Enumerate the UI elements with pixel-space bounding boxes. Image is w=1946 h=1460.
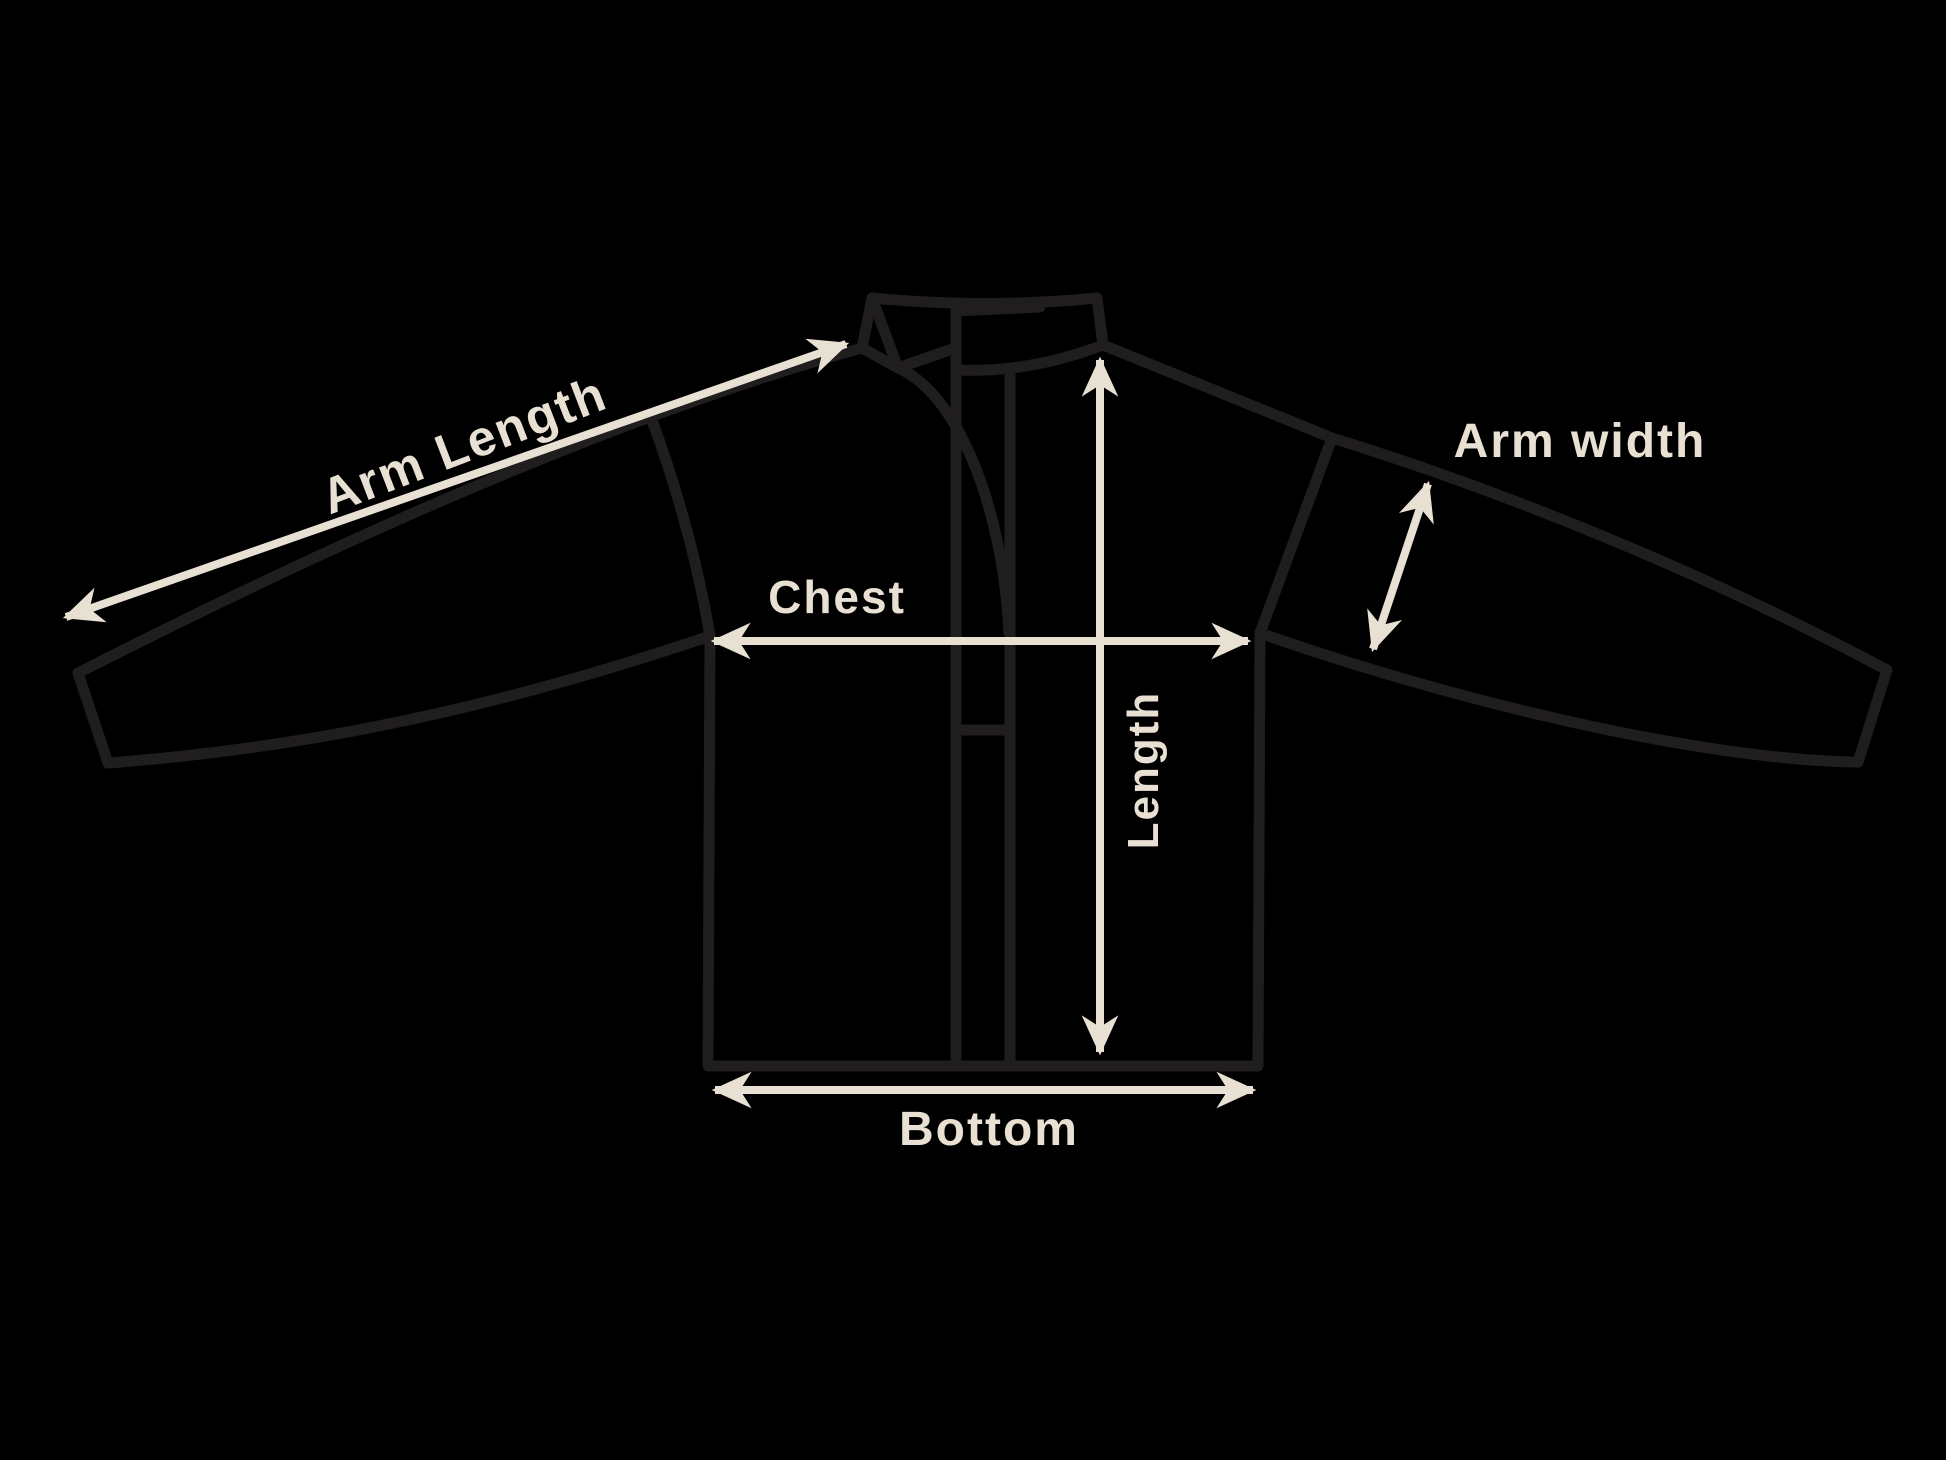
jacket-measurement-diagram: Arm Length Chest Arm width Length Bottom bbox=[0, 0, 1946, 1460]
collar-top-edge bbox=[872, 298, 1097, 304]
collar-right-edge bbox=[1097, 298, 1103, 345]
diagram-canvas: Arm Length Chest Arm width Length Bottom bbox=[0, 0, 1946, 1460]
bottom-label: Bottom bbox=[899, 1103, 1079, 1156]
right-shoulder-line bbox=[1103, 345, 1332, 438]
chest-label: Chest bbox=[768, 571, 906, 623]
right-cuff bbox=[1858, 670, 1887, 762]
right-sleeve-top-edge bbox=[1332, 438, 1887, 670]
measurement-arrows bbox=[66, 344, 1428, 1090]
left-armhole-seam bbox=[652, 420, 710, 636]
left-sleeve-top-edge bbox=[78, 348, 862, 673]
collar-fold bbox=[862, 298, 955, 368]
collar-bottom-edge bbox=[958, 345, 1103, 370]
body-outline bbox=[708, 633, 1260, 1066]
arm-length-arrow bbox=[66, 344, 846, 617]
right-armhole-seam bbox=[1260, 438, 1332, 633]
arm-width-label: Arm width bbox=[1454, 415, 1707, 468]
jacket-outline bbox=[78, 298, 1887, 1066]
right-sleeve-bottom-edge bbox=[1260, 633, 1858, 762]
collar-inner-edge bbox=[956, 307, 1040, 311]
arm-width-arrow bbox=[1373, 484, 1428, 649]
left-cuff bbox=[78, 673, 108, 763]
length-label: Length bbox=[1119, 691, 1168, 850]
left-sleeve-bottom-edge bbox=[108, 636, 710, 763]
